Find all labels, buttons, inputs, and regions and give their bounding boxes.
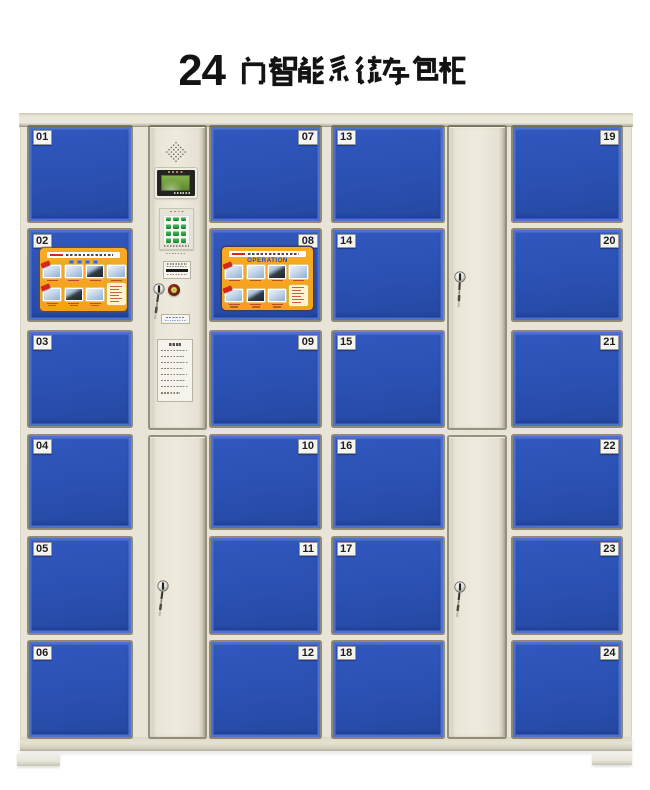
svg-text:24: 24 [180,50,226,90]
